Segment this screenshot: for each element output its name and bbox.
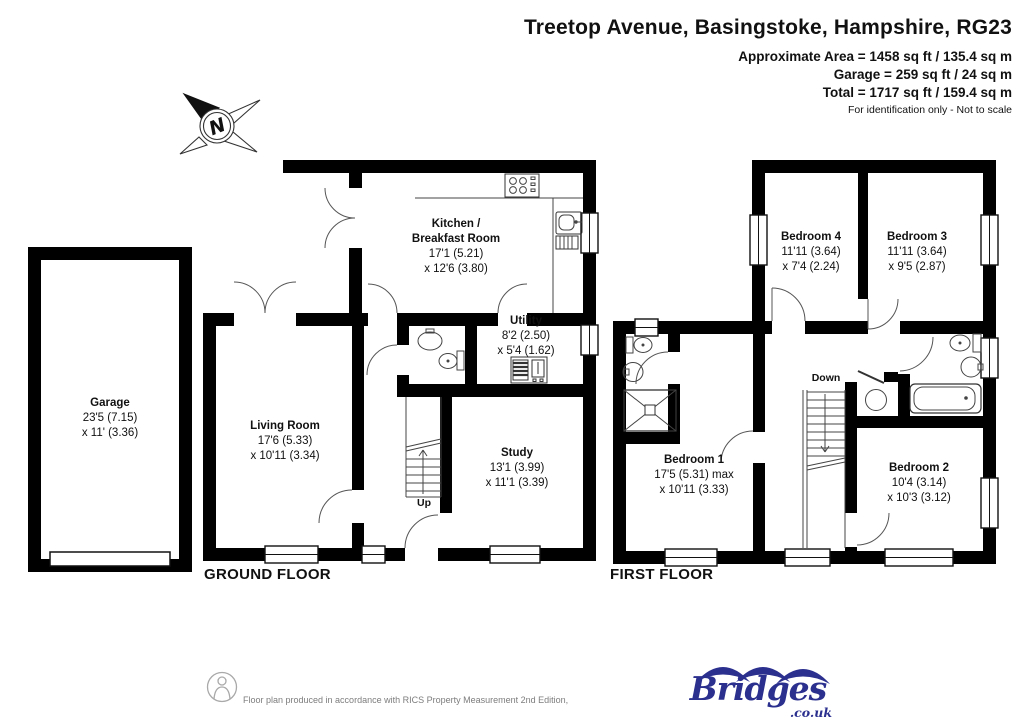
room-label-bedroom4: Bedroom 4 11'11 (3.64) x 7'4 (2.24) [740, 230, 882, 275]
area-garage-line: Garage = 259 sq ft / 24 sq m [500, 66, 1012, 84]
ground-stairs [406, 397, 441, 497]
bridges-logo-suffix: .co.uk [686, 705, 832, 720]
wc-fixtures [418, 329, 464, 370]
bridges-logo-text: Bridges [684, 672, 832, 706]
area-grand-total-line: Total = 1717 sq ft / 159.4 sq m [500, 84, 1012, 102]
airing-cupboard-cylinder [866, 390, 887, 411]
utility-fixtures [511, 357, 547, 383]
area-total-line: Approximate Area = 1458 sq ft / 135.4 sq… [500, 48, 1012, 66]
first-floor-title: FIRST FLOOR [610, 566, 713, 583]
stairs-up-label: Up [407, 497, 441, 509]
garage-door [50, 552, 170, 566]
surveyor-icon [208, 673, 237, 702]
floorplan-page: N [0, 0, 1024, 724]
room-label-garage: Garage 23'5 (7.15) x 11' (3.36) [40, 396, 180, 441]
area-summary: Approximate Area = 1458 sq ft / 135.4 sq… [500, 48, 1012, 102]
room-label-bedroom2: Bedroom 2 10'4 (3.14) x 10'3 (3.12) [838, 461, 1000, 506]
bathroom-fixtures [910, 334, 983, 413]
stairs-down-label: Down [799, 372, 853, 384]
disclaimer: Floor plan produced in accordance with R… [243, 669, 703, 724]
room-label-bedroom1: Bedroom 1 17'5 (5.31) max x 10'11 (3.33) [614, 453, 774, 498]
room-label-kitchen: Kitchen / Breakfast Room 17'1 (5.21) x 1… [376, 217, 536, 277]
scale-note: For identification only - Not to scale [600, 104, 1012, 116]
disclaimer-line: Floor plan produced in accordance with R… [243, 694, 703, 707]
room-label-utility: Utility 8'2 (2.50) x 5'4 (1.62) [464, 314, 588, 359]
ground-floor-title: GROUND FLOOR [204, 566, 331, 583]
room-label-living-room: Living Room 17'6 (5.33) x 10'11 (3.34) [205, 419, 365, 464]
page-title: Treetop Avenue, Basingstoke, Hampshire, … [300, 16, 1012, 40]
compass-north-icon: N [180, 94, 260, 154]
room-label-study: Study 13'1 (3.99) x 11'1 (3.39) [447, 446, 587, 491]
